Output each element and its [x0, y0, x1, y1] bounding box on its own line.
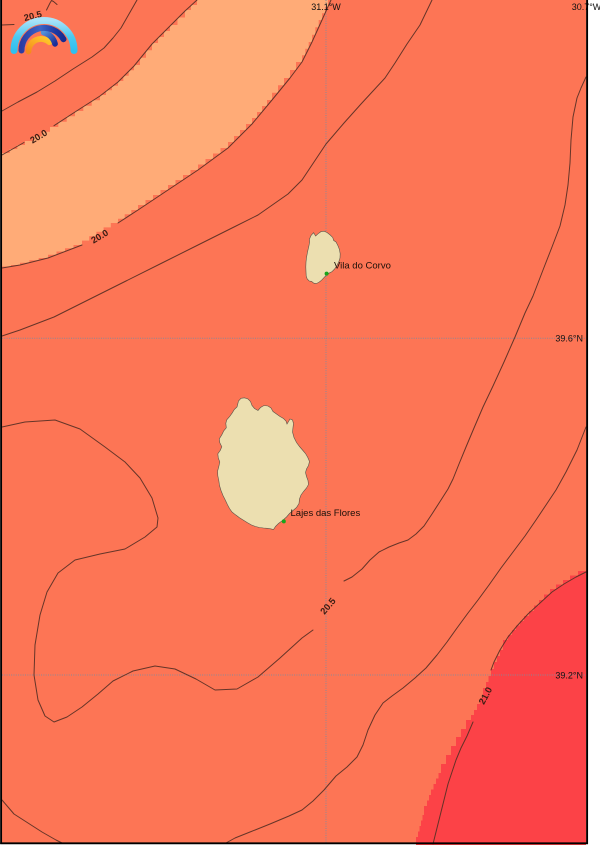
svg-text:39.6°N: 39.6°N: [555, 334, 583, 344]
svg-text:31.1°W: 31.1°W: [311, 2, 341, 12]
svg-text:39.2°N: 39.2°N: [555, 671, 583, 681]
svg-text:Vila do Corvo: Vila do Corvo: [334, 261, 391, 272]
svg-text:30.7°W: 30.7°W: [572, 2, 600, 12]
svg-text:Lajes das Flores: Lajes das Flores: [291, 508, 361, 519]
